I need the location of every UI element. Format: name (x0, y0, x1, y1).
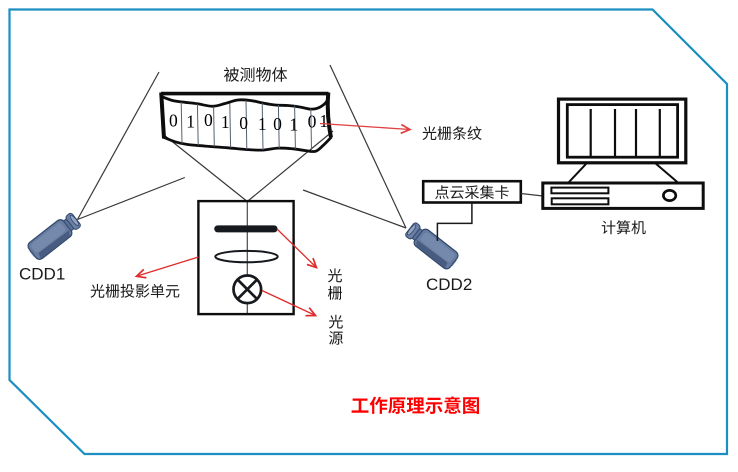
svg-text:0: 0 (169, 110, 178, 130)
svg-text:1: 1 (258, 114, 267, 134)
svg-text:0: 0 (308, 112, 317, 132)
svg-text:CDD2: CDD2 (426, 275, 472, 294)
svg-text:1: 1 (221, 112, 230, 132)
svg-text:1: 1 (289, 114, 298, 134)
svg-text:CDD1: CDD1 (19, 265, 65, 284)
svg-text:1: 1 (319, 111, 328, 131)
svg-text:0: 0 (204, 110, 213, 130)
svg-text:0: 0 (273, 114, 282, 134)
svg-text:0: 0 (239, 113, 248, 133)
svg-text:1: 1 (186, 111, 195, 131)
